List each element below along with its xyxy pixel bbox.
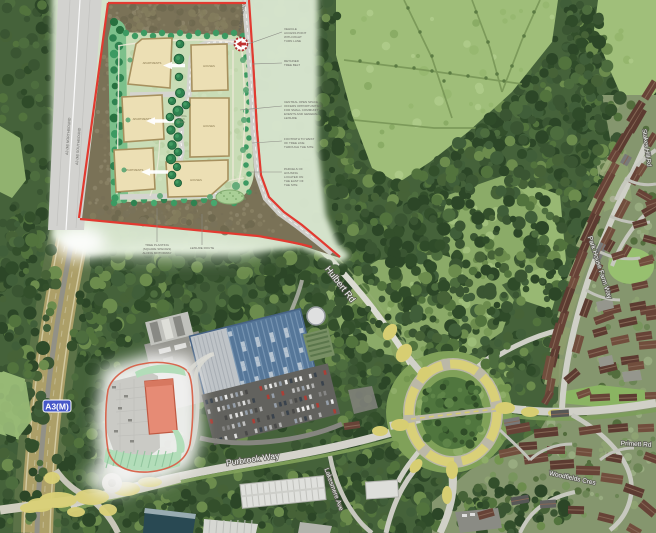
svg-text:A3(M): A3(M) <box>45 402 69 412</box>
